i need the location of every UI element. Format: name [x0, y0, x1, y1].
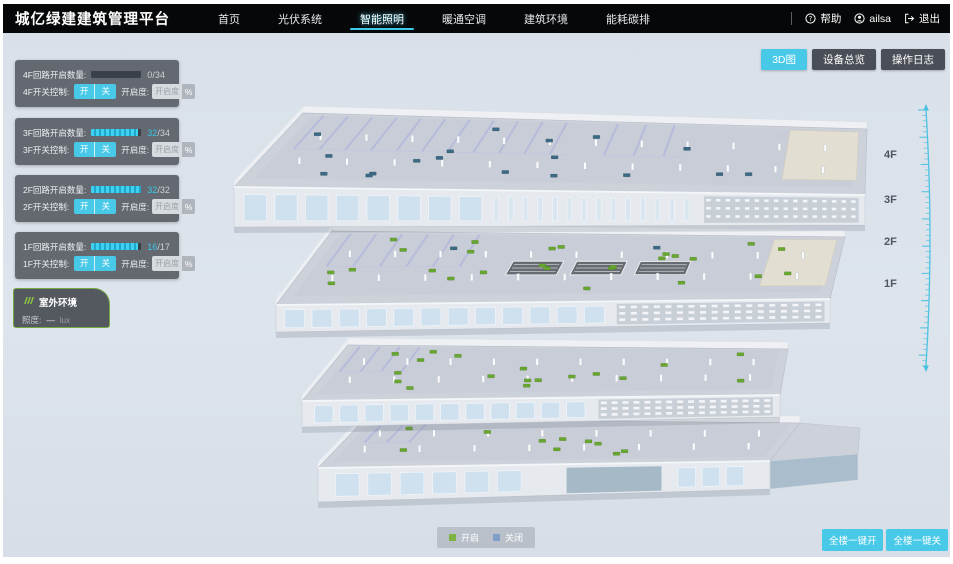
switch-segment: 开 关: [74, 256, 116, 271]
username: ailsa: [869, 13, 891, 25]
floor-panel-3f: 3F回路开启数量: 32/34 3F开关控制: 开 关 开启度: %: [15, 118, 179, 165]
switch-segment: 开 关: [74, 142, 116, 157]
floor-tag-2f: 2F: [884, 236, 897, 248]
legend-on: 开启: [449, 531, 479, 544]
dim-input-group: %: [152, 256, 195, 271]
floor-panel-1f: 1F回路开启数量: 16/17 1F开关控制: 开 关 开启度: %: [15, 232, 179, 279]
view-3d-button[interactable]: 3D图: [761, 49, 807, 70]
loop-progress-bar: [91, 186, 141, 193]
logout-label: 退出: [919, 11, 940, 26]
main-nav: 首页 光伏系统 智能照明 暖通空调 建筑环境 能耗碳排: [212, 4, 656, 33]
outdoor-env-panel: 室外环境 照度: — lux: [13, 288, 110, 328]
loop-count-label: 3F回路开启数量:: [23, 127, 86, 139]
floor-panel-4f: 4F回路开启数量: 0/34 4F开关控制: 开 关 开启度: %: [15, 60, 179, 107]
nav-home[interactable]: 首页: [212, 4, 246, 33]
legend-on-label: 开启: [461, 531, 479, 544]
loop-progress-bar: [91, 243, 141, 250]
switch-off-button[interactable]: 关: [95, 142, 116, 157]
legend-off-label: 关闭: [505, 531, 523, 544]
loop-count-value: 32/32: [147, 185, 170, 195]
all-on-button[interactable]: 全楼一键开: [822, 529, 884, 551]
header: 城亿绿建建筑管理平台 首页 光伏系统 智能照明 暖通空调 建筑环境 能耗碳排 ?…: [3, 4, 950, 33]
logout-icon: [904, 13, 915, 24]
header-right: ? 帮助 ailsa 退出: [791, 11, 940, 26]
nav-smart-lighting[interactable]: 智能照明: [354, 4, 410, 33]
bulk-actions: 全楼一键开 全楼一键关: [822, 529, 948, 551]
loop-count-value: 32/34: [147, 128, 170, 138]
user-avatar-icon: [854, 13, 865, 24]
dim-input[interactable]: [152, 142, 182, 157]
all-off-button[interactable]: 全楼一键关: [886, 529, 948, 551]
header-divider: [791, 12, 792, 25]
switch-segment: 开 关: [74, 84, 116, 99]
floor-panel-2f: 2F回路开启数量: 32/32 2F开关控制: 开 关 开启度: %: [15, 175, 179, 222]
dim-input-group: %: [152, 84, 195, 99]
switch-control-label: 1F开关控制:: [23, 258, 69, 270]
loop-progress-bar: [91, 129, 141, 136]
switch-on-button[interactable]: 开: [74, 84, 95, 99]
loop-count-label: 2F回路开启数量:: [23, 184, 86, 196]
switch-on-button[interactable]: 开: [74, 199, 95, 214]
loop-count-label: 4F回路开启数量:: [23, 69, 86, 81]
switch-segment: 开 关: [74, 199, 116, 214]
svg-text:?: ?: [809, 15, 813, 23]
floor-tag-1f: 1F: [884, 278, 897, 290]
view-toolbar: 3D图 设备总览 操作日志: [761, 49, 945, 70]
percent-unit: %: [182, 256, 195, 271]
switch-off-button[interactable]: 关: [95, 84, 116, 99]
nav-photovoltaic[interactable]: 光伏系统: [272, 4, 328, 33]
percent-unit: %: [182, 199, 195, 214]
help-button[interactable]: ? 帮助: [805, 11, 841, 26]
loop-count-label: 1F回路开启数量:: [23, 241, 86, 253]
dim-input[interactable]: [152, 256, 182, 271]
dim-label: 开启度:: [121, 144, 149, 156]
switch-on-button[interactable]: 开: [74, 256, 95, 271]
device-overview-button[interactable]: 设备总览: [812, 49, 876, 70]
switch-control-label: 3F开关控制:: [23, 144, 69, 156]
nav-energy-carbon[interactable]: 能耗碳排: [600, 4, 656, 33]
percent-unit: %: [182, 84, 195, 99]
legend-off: 关闭: [493, 531, 523, 544]
illuminance-unit: lux: [60, 316, 70, 325]
outdoor-env-icon: [22, 296, 34, 308]
app-title: 城亿绿建建筑管理平台: [15, 8, 170, 29]
nav-building-env[interactable]: 建筑环境: [518, 4, 574, 33]
dim-input[interactable]: [152, 199, 182, 214]
dim-input-group: %: [152, 142, 195, 157]
dim-label: 开启度:: [121, 201, 149, 213]
percent-unit: %: [182, 142, 195, 157]
help-label: 帮助: [820, 11, 841, 26]
legend-off-swatch: [493, 534, 500, 541]
lights-legend: 开启 关闭: [437, 527, 535, 548]
dim-input-group: %: [152, 199, 195, 214]
logout-button[interactable]: 退出: [904, 11, 940, 26]
user-menu[interactable]: ailsa: [854, 13, 891, 25]
switch-off-button[interactable]: 关: [95, 256, 116, 271]
illuminance-label: 照度:: [22, 314, 41, 326]
help-icon: ?: [805, 13, 816, 24]
floor-tag-3f: 3F: [884, 194, 897, 206]
switch-off-button[interactable]: 关: [95, 199, 116, 214]
switch-on-button[interactable]: 开: [74, 142, 95, 157]
floor-tag-4f: 4F: [884, 149, 897, 161]
operation-log-button[interactable]: 操作日志: [881, 49, 945, 70]
nav-hvac[interactable]: 暖通空调: [436, 4, 492, 33]
outdoor-env-title: 室外环境: [39, 295, 77, 309]
loop-count-value: 0/34: [147, 70, 165, 80]
legend-on-swatch: [449, 534, 456, 541]
switch-control-label: 4F开关控制:: [23, 86, 69, 98]
loop-progress-bar: [91, 71, 141, 78]
dim-input[interactable]: [152, 84, 182, 99]
loop-count-value: 16/17: [147, 242, 170, 252]
dim-label: 开启度:: [121, 86, 149, 98]
switch-control-label: 2F开关控制:: [23, 201, 69, 213]
illuminance-value: —: [46, 315, 55, 325]
dim-label: 开启度:: [121, 258, 149, 270]
